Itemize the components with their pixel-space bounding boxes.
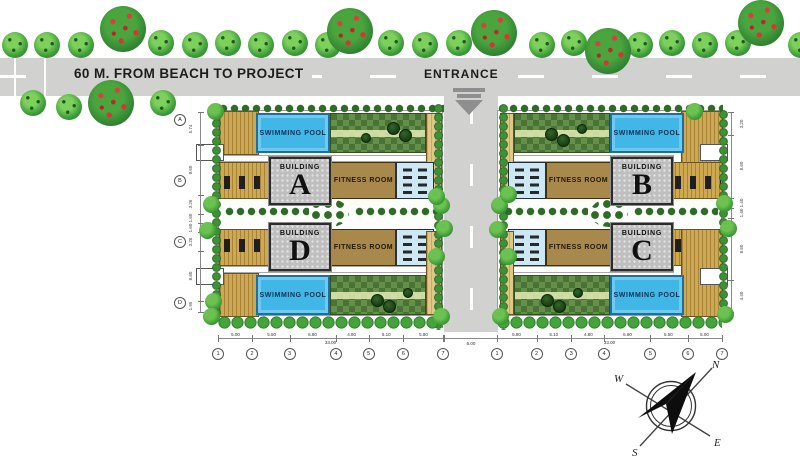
tree-icon	[788, 32, 800, 58]
shrub-row	[355, 207, 439, 216]
tree-icon	[2, 32, 28, 58]
tree-icon	[627, 32, 653, 58]
building-c-label-box: BUILDING C	[611, 223, 673, 271]
tree-icon	[489, 221, 506, 238]
garden-tree-icon	[573, 288, 583, 298]
entrance-label: ENTRANCE	[414, 67, 509, 81]
entrance-road-centerline	[470, 102, 473, 328]
tree-icon	[471, 10, 517, 56]
grid-bubble: 3	[565, 348, 577, 360]
fitness-room-label: FITNESS ROOM	[334, 244, 393, 251]
garden-tree-icon	[553, 300, 566, 313]
garden-tree-icon	[577, 124, 587, 134]
building-letter: A	[289, 171, 311, 199]
shrub-row	[634, 207, 718, 216]
fitness-room: FITNESS ROOM	[331, 162, 396, 199]
dimension-value: 1.40	[739, 208, 744, 217]
dimension-value: 5.10	[369, 332, 404, 337]
dimension-ruler-bottom-right: 5.805.104.806.805.505.0033.001234567	[497, 332, 722, 360]
tree-icon	[529, 32, 555, 58]
fitness-room: FITNESS ROOM	[546, 229, 611, 266]
dimension-value: 5.74	[188, 124, 193, 133]
tree-icon	[248, 32, 274, 58]
grid-bubble: B	[174, 175, 186, 187]
left-building-complex: SWIMMING POOL FITNESS ROOM BUILDING A	[218, 110, 443, 316]
roadside-hedge	[434, 104, 443, 330]
grid-bubble: D	[174, 297, 186, 309]
garden-tree-icon	[557, 134, 570, 147]
dimension-value: 5.80	[497, 332, 536, 337]
grid-bubble: 4	[598, 348, 610, 360]
grid-bubbles: 1234567	[497, 348, 722, 360]
road-width-value: 6.00	[444, 341, 498, 346]
grid-bubble: 5	[644, 348, 656, 360]
gym-equipment-icon	[403, 234, 412, 261]
roadside-hedge	[499, 104, 508, 330]
tree-icon	[68, 32, 94, 58]
swimming-pool-label: SWIMMING POOL	[614, 130, 681, 137]
tree-icon	[207, 103, 224, 120]
tree-icon	[717, 306, 734, 323]
gym-equipment-icon	[403, 167, 412, 194]
compass-north-label: N	[711, 359, 720, 371]
dimension-value: 3.26	[188, 200, 193, 209]
tree-icon	[428, 188, 445, 205]
building-letter: B	[632, 171, 652, 199]
dimension-line	[497, 338, 722, 339]
grid-bubble: 6	[397, 348, 409, 360]
dimension-value: 1.40	[739, 198, 744, 207]
dimension-value: 6.80	[290, 332, 334, 337]
grid-bubble: 5	[363, 348, 375, 360]
garden-area	[514, 275, 610, 315]
dimension-value: 3.20	[739, 119, 744, 128]
tree-icon	[88, 80, 134, 126]
gym-equipment-icon	[418, 167, 427, 194]
dimension-value: 5.50	[253, 332, 291, 337]
tree-icon	[203, 308, 220, 325]
tree-icon	[20, 90, 46, 116]
fitness-room-label: FITNESS ROOM	[334, 177, 393, 184]
compass-south-label: S	[632, 447, 638, 458]
dimension-line	[731, 112, 732, 312]
tree-icon	[500, 248, 517, 265]
tree-icon	[150, 90, 176, 116]
dimension-ruler-bottom-left: 5.005.506.804.805.105.8033.001234567	[218, 332, 443, 360]
garden-tree-icon	[387, 122, 400, 135]
grid-bubble: A	[174, 114, 186, 126]
garden-tree-icon	[361, 133, 371, 143]
lounge-chairs	[675, 176, 721, 189]
dimension-value: 5.80	[404, 332, 443, 337]
perimeter-hedge	[212, 110, 221, 316]
dimension-value: 8.60	[739, 162, 744, 171]
shrub-row	[504, 207, 588, 216]
gym-equipment-icon	[530, 167, 539, 194]
tree-icon	[412, 32, 438, 58]
grid-bubble: 4	[330, 348, 342, 360]
dimension-value: 8.60	[739, 245, 744, 254]
dimension-value: 5.10	[536, 332, 571, 337]
dimension-ruler-left-side: 5.748.603.261.601.603.268.601.95ABCD	[174, 112, 204, 312]
deck-area	[219, 273, 259, 317]
perimeter-hedge	[218, 316, 443, 329]
tree-icon	[492, 308, 509, 325]
building-letter: C	[631, 237, 653, 265]
quadrant-building-c: FITNESS ROOM SWIMMING POOL BUILDING C	[498, 229, 723, 317]
dimension-value: 8.60	[188, 166, 193, 175]
dimension-value: 1.60	[188, 214, 193, 223]
tree-icon	[378, 30, 404, 56]
dimension-value: 8.60	[188, 271, 193, 280]
compass-rose: N E S W	[608, 356, 728, 458]
tree-icon	[716, 195, 733, 212]
tree-icon	[585, 28, 631, 74]
fitness-room-label: FITNESS ROOM	[549, 244, 608, 251]
grid-bubble: 1	[212, 348, 224, 360]
grid-bubble: 2	[531, 348, 543, 360]
dimension-value: 4.80	[571, 332, 605, 337]
dimension-value: 4.80	[335, 332, 369, 337]
building-letter: D	[289, 237, 311, 265]
dimension-value: 3.26	[188, 237, 193, 246]
dimension-value: 5.00	[687, 332, 722, 337]
swimming-pool: SWIMMING POOL	[256, 113, 330, 153]
entrance-arrow-icon	[452, 88, 486, 116]
tree-icon	[500, 186, 517, 203]
dimension-ruler-right-side: 3.208.601.401.408.604.40	[728, 112, 754, 312]
grid-bubble: C	[174, 236, 186, 248]
tree-icon	[738, 0, 784, 46]
swimming-pool-label: SWIMMING POOL	[614, 292, 681, 299]
swimming-pool: SWIMMING POOL	[610, 113, 684, 153]
gym-equipment-icon	[530, 234, 539, 261]
compass-west-label: W	[614, 373, 624, 385]
quadrant-building-b: SWIMMING POOL FITNESS ROOM BUILDING B	[498, 111, 723, 199]
compass-east-label: E	[713, 437, 721, 449]
dimension-line	[218, 338, 443, 339]
garden-area	[330, 275, 426, 315]
tree-icon	[56, 94, 82, 120]
dimension-value: 6.80	[605, 332, 649, 337]
tree-icon	[692, 32, 718, 58]
tree-icon	[446, 30, 472, 56]
road-width-dimension: 6.00	[444, 338, 498, 346]
fitness-room: FITNESS ROOM	[546, 162, 611, 199]
tree-icon	[720, 220, 737, 237]
tree-icon	[215, 30, 241, 56]
perimeter-hedge	[719, 110, 728, 316]
lounge-chairs	[224, 239, 270, 252]
grid-bubble: 2	[246, 348, 258, 360]
lounge-chairs	[224, 176, 270, 189]
swimming-pool-label: SWIMMING POOL	[260, 292, 327, 299]
tree-icon	[428, 248, 445, 265]
tree-icon	[182, 32, 208, 58]
dimension-line	[200, 112, 201, 312]
fitness-room-label: FITNESS ROOM	[549, 177, 608, 184]
swimming-pool: SWIMMING POOL	[256, 275, 330, 315]
road-marking	[14, 58, 16, 96]
perimeter-hedge	[497, 316, 722, 329]
dimension-value: 1.95	[188, 302, 193, 311]
dimension-value: 5.00	[218, 332, 253, 337]
tree-icon	[659, 30, 685, 56]
tree-icon	[561, 30, 587, 56]
tree-icon	[100, 6, 146, 52]
grid-bubbles: 1234567	[218, 348, 443, 360]
garden-area	[330, 113, 426, 153]
grid-bubble: 7	[716, 348, 728, 360]
gym-equipment-icon	[515, 167, 524, 194]
building-b-label-box: BUILDING B	[611, 157, 673, 205]
grid-bubble: 6	[682, 348, 694, 360]
tree-icon	[433, 308, 450, 325]
grid-bubble: 7	[437, 348, 449, 360]
tree-icon	[327, 8, 373, 54]
deck-area	[219, 111, 259, 155]
site-plan-canvas: 60 M. FROM BEACH TO PROJECT ENTRANCE SWI…	[0, 0, 800, 459]
grid-bubble: 3	[284, 348, 296, 360]
building-d-label-box: BUILDING D	[269, 223, 331, 271]
garden-area	[514, 113, 610, 153]
tree-icon	[203, 196, 220, 213]
dimension-value: 4.40	[739, 292, 744, 301]
tree-icon	[436, 220, 453, 237]
quadrant-building-d: FITNESS ROOM SWIMMING POOL BUILDING D	[219, 229, 444, 317]
dimension-value: 1.60	[188, 223, 193, 232]
tree-icon	[148, 30, 174, 56]
garden-tree-icon	[383, 300, 396, 313]
tree-icon	[282, 30, 308, 56]
swimming-pool-label: SWIMMING POOL	[260, 130, 327, 137]
swimming-pool: SWIMMING POOL	[610, 275, 684, 315]
right-building-complex: SWIMMING POOL FITNESS ROOM BUILDING B	[497, 110, 722, 316]
shrub-row	[225, 207, 309, 216]
fitness-room: FITNESS ROOM	[331, 229, 396, 266]
dimension-value: 5.50	[650, 332, 688, 337]
garden-tree-icon	[399, 129, 412, 142]
garden-tree-icon	[403, 288, 413, 298]
tree-icon	[686, 103, 703, 120]
tree-icon	[34, 32, 60, 58]
quadrant-building-a: SWIMMING POOL FITNESS ROOM BUILDING A	[219, 111, 444, 199]
road-marking	[44, 58, 46, 96]
beach-distance-label: 60 M. FROM BEACH TO PROJECT	[66, 66, 312, 81]
tree-icon	[199, 222, 216, 239]
building-a-label-box: BUILDING A	[269, 157, 331, 205]
grid-bubble: 1	[491, 348, 503, 360]
